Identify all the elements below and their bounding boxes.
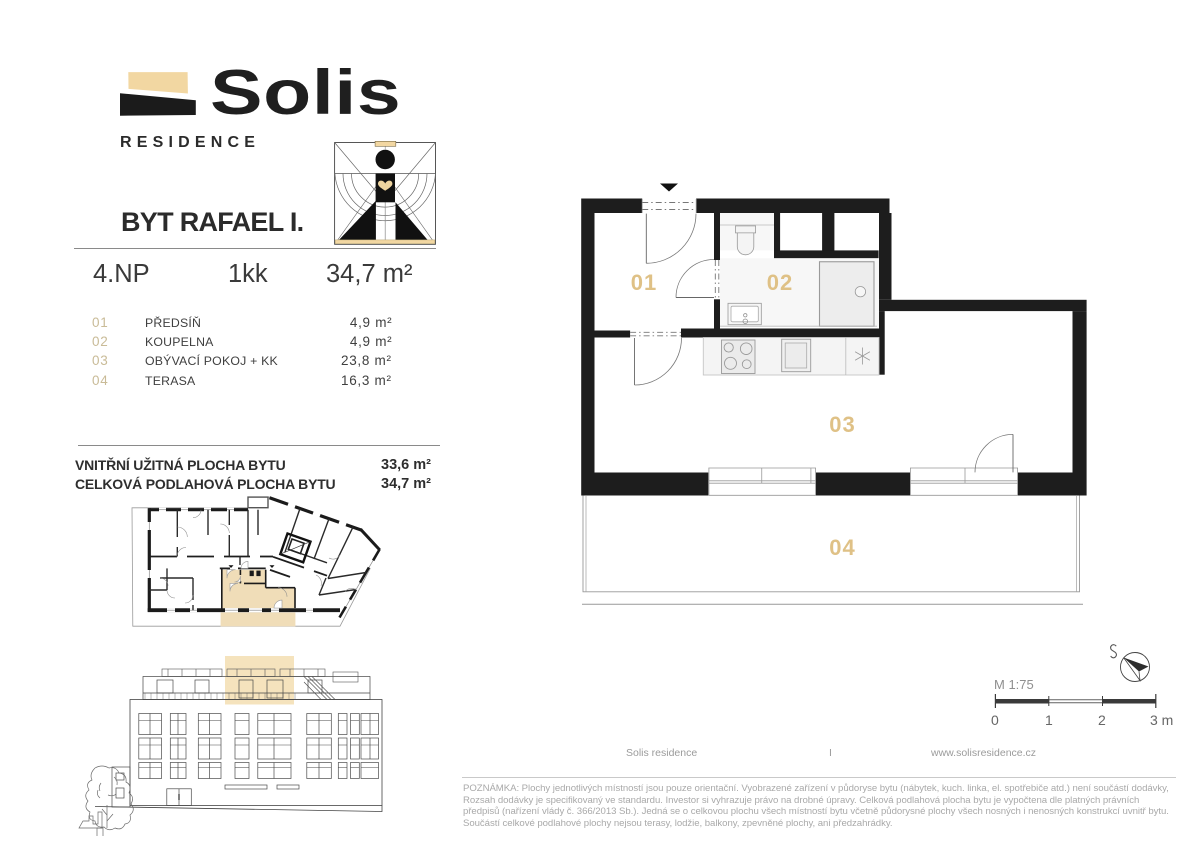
svg-text:04: 04 (829, 535, 855, 560)
svg-text:01: 01 (631, 270, 657, 295)
svg-text:3 m: 3 m (1150, 712, 1173, 728)
svg-text:02: 02 (767, 270, 793, 295)
svg-text:1: 1 (1045, 712, 1053, 728)
svg-text:03: 03 (829, 412, 855, 437)
svg-text:M 1:75: M 1:75 (994, 677, 1034, 692)
svg-text:2: 2 (1098, 712, 1106, 728)
svg-text:0: 0 (991, 712, 999, 728)
